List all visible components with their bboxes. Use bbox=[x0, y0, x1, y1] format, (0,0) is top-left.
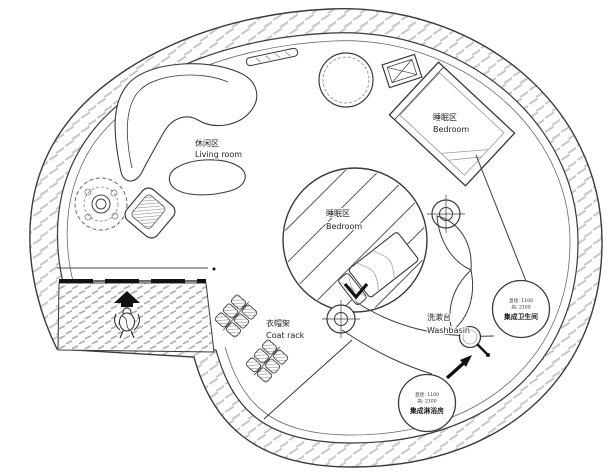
label-coat-rack-en: Coat rack bbox=[266, 331, 305, 340]
partition-line-2 bbox=[476, 155, 526, 281]
coffee-table bbox=[169, 160, 245, 195]
wall-shelf bbox=[246, 48, 299, 67]
corridor-edge-2 bbox=[342, 330, 432, 374]
coat-rack-1 bbox=[213, 293, 259, 340]
toilet-pod-name: 集成卫生间 bbox=[503, 312, 538, 321]
label-bedroom-loft-en: Bedroom bbox=[326, 222, 362, 231]
label-bedroom-loft-zh: 睡眠区 bbox=[326, 209, 350, 218]
flow-arrow-icon bbox=[447, 355, 472, 378]
label-living-en: Living room bbox=[195, 150, 242, 159]
column-marker-1 bbox=[427, 195, 465, 233]
shower-pod-name: 集成淋浴房 bbox=[409, 406, 444, 415]
reference-dot bbox=[213, 268, 216, 271]
toilet-pod-spec-2: 高: 2100 bbox=[511, 304, 530, 311]
toilet-pod-spec-1: 直径: 1100 bbox=[509, 297, 533, 304]
floor-plan-svg: 休闲区 Living room 睡眠区 Bedroom 睡眠区 Bedroom … bbox=[0, 0, 611, 473]
label-bedroom-upper-zh: 睡眠区 bbox=[433, 113, 457, 122]
coat-rack-2 bbox=[244, 338, 290, 385]
shower-pod-spec-1: 直径: 1100 bbox=[415, 391, 439, 398]
label-washbasin-zh: 洗漱台 bbox=[427, 312, 451, 322]
label-coat-rack-zh: 衣帽架 bbox=[266, 318, 290, 328]
label-living-zh: 休闲区 bbox=[195, 138, 219, 148]
label-bedroom-upper-en: Bedroom bbox=[433, 125, 469, 134]
plant bbox=[75, 178, 127, 230]
label-washbasin-en: Washbasin bbox=[427, 326, 470, 335]
entrance-deck bbox=[57, 268, 216, 353]
shower-pod-spec-2: 高: 2100 bbox=[417, 398, 436, 405]
lounge-chair bbox=[122, 185, 178, 241]
window-box-icon bbox=[382, 54, 422, 87]
round-table bbox=[319, 53, 373, 107]
floor-plan: 休闲区 Living room 睡眠区 Bedroom 睡眠区 Bedroom … bbox=[0, 0, 611, 473]
